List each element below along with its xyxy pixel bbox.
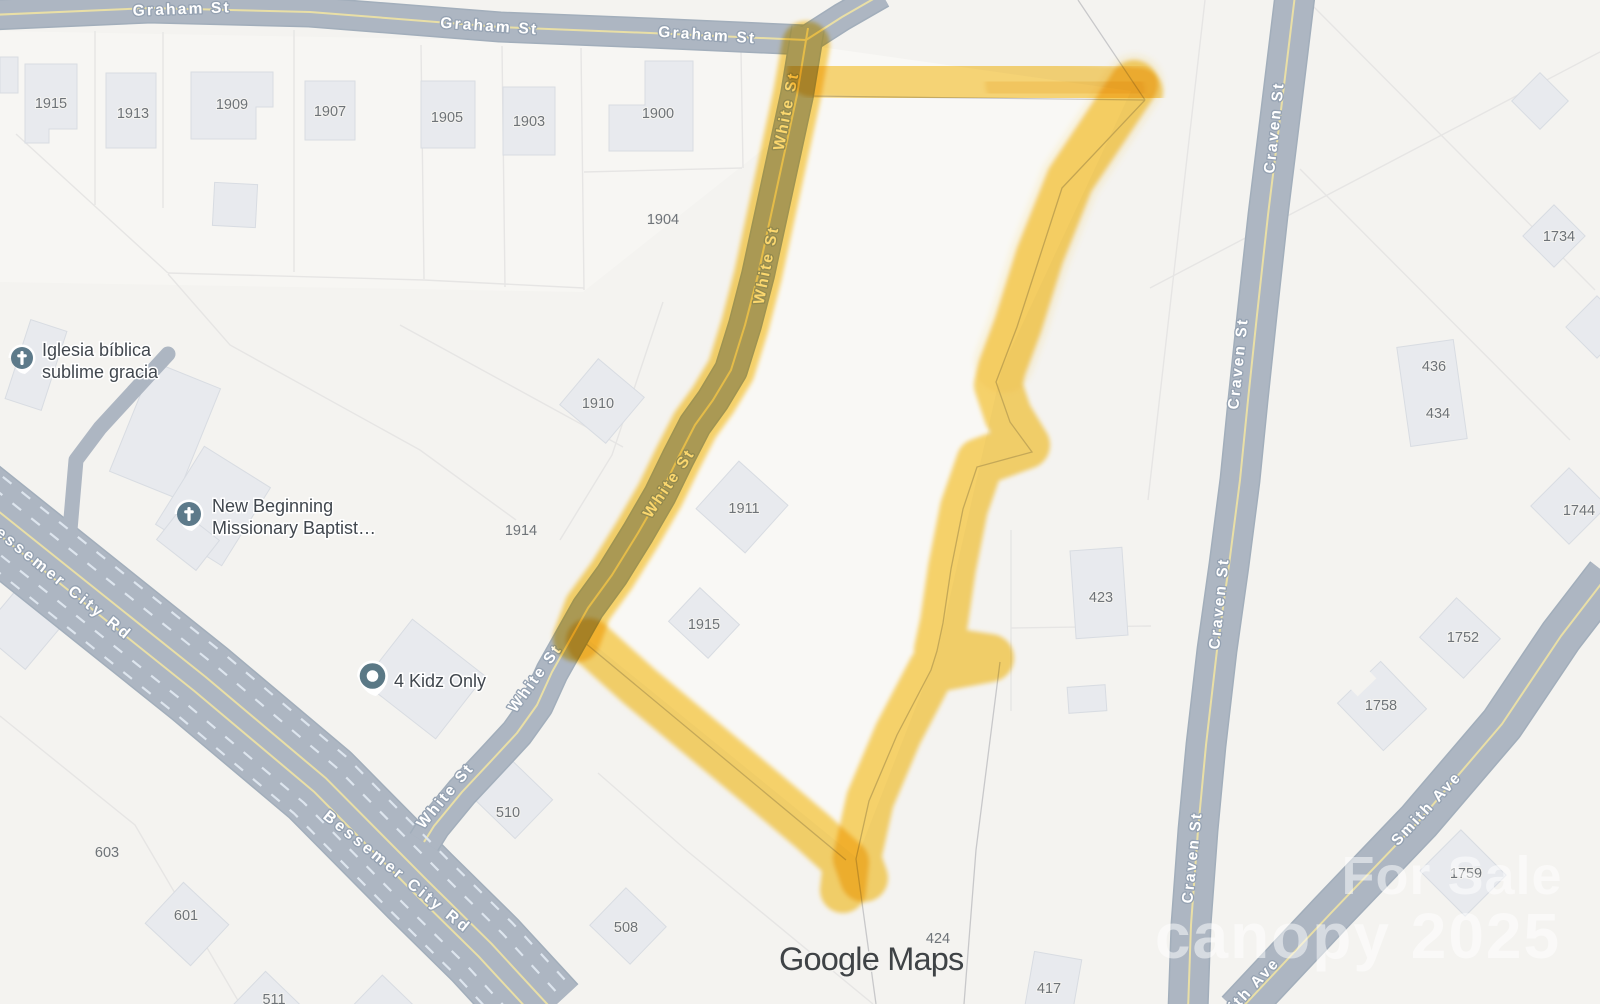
- svg-text:1913: 1913: [117, 106, 149, 122]
- svg-text:1915: 1915: [35, 96, 67, 112]
- svg-text:1734: 1734: [1543, 229, 1575, 245]
- svg-text:423: 423: [1089, 590, 1113, 606]
- svg-text:1909: 1909: [216, 97, 248, 113]
- svg-text:434: 434: [1426, 406, 1450, 422]
- svg-text:603: 603: [95, 845, 119, 861]
- svg-text:1904: 1904: [647, 212, 679, 228]
- svg-text:1752: 1752: [1447, 630, 1479, 646]
- svg-text:Iglesia bíblica: Iglesia bíblica: [42, 340, 152, 360]
- svg-text:1758: 1758: [1365, 698, 1397, 714]
- svg-text:1905: 1905: [431, 110, 463, 126]
- svg-text:sublime gracia: sublime gracia: [42, 362, 159, 382]
- svg-text:1744: 1744: [1563, 503, 1595, 519]
- svg-text:511: 511: [262, 992, 285, 1004]
- svg-text:1910: 1910: [582, 396, 614, 412]
- svg-text:Graham St: Graham St: [132, 0, 231, 20]
- svg-text:1907: 1907: [314, 104, 346, 120]
- svg-text:4 Kidz Only: 4 Kidz Only: [394, 671, 486, 691]
- svg-text:601: 601: [174, 908, 198, 924]
- svg-text:canopy 2025: canopy 2025: [1155, 900, 1561, 972]
- svg-text:Google Maps: Google Maps: [779, 941, 964, 977]
- svg-text:New Beginning: New Beginning: [212, 496, 333, 516]
- svg-text:Missionary Baptist…: Missionary Baptist…: [212, 518, 376, 538]
- svg-text:For Sale: For Sale: [1341, 846, 1562, 906]
- svg-text:508: 508: [614, 920, 638, 936]
- svg-text:1911: 1911: [728, 501, 759, 517]
- svg-text:1914: 1914: [505, 523, 537, 539]
- svg-text:1903: 1903: [513, 114, 545, 130]
- svg-text:510: 510: [496, 805, 520, 821]
- svg-text:1915: 1915: [688, 617, 720, 633]
- svg-text:436: 436: [1422, 359, 1446, 375]
- svg-text:417: 417: [1037, 981, 1061, 997]
- svg-text:1900: 1900: [642, 106, 674, 122]
